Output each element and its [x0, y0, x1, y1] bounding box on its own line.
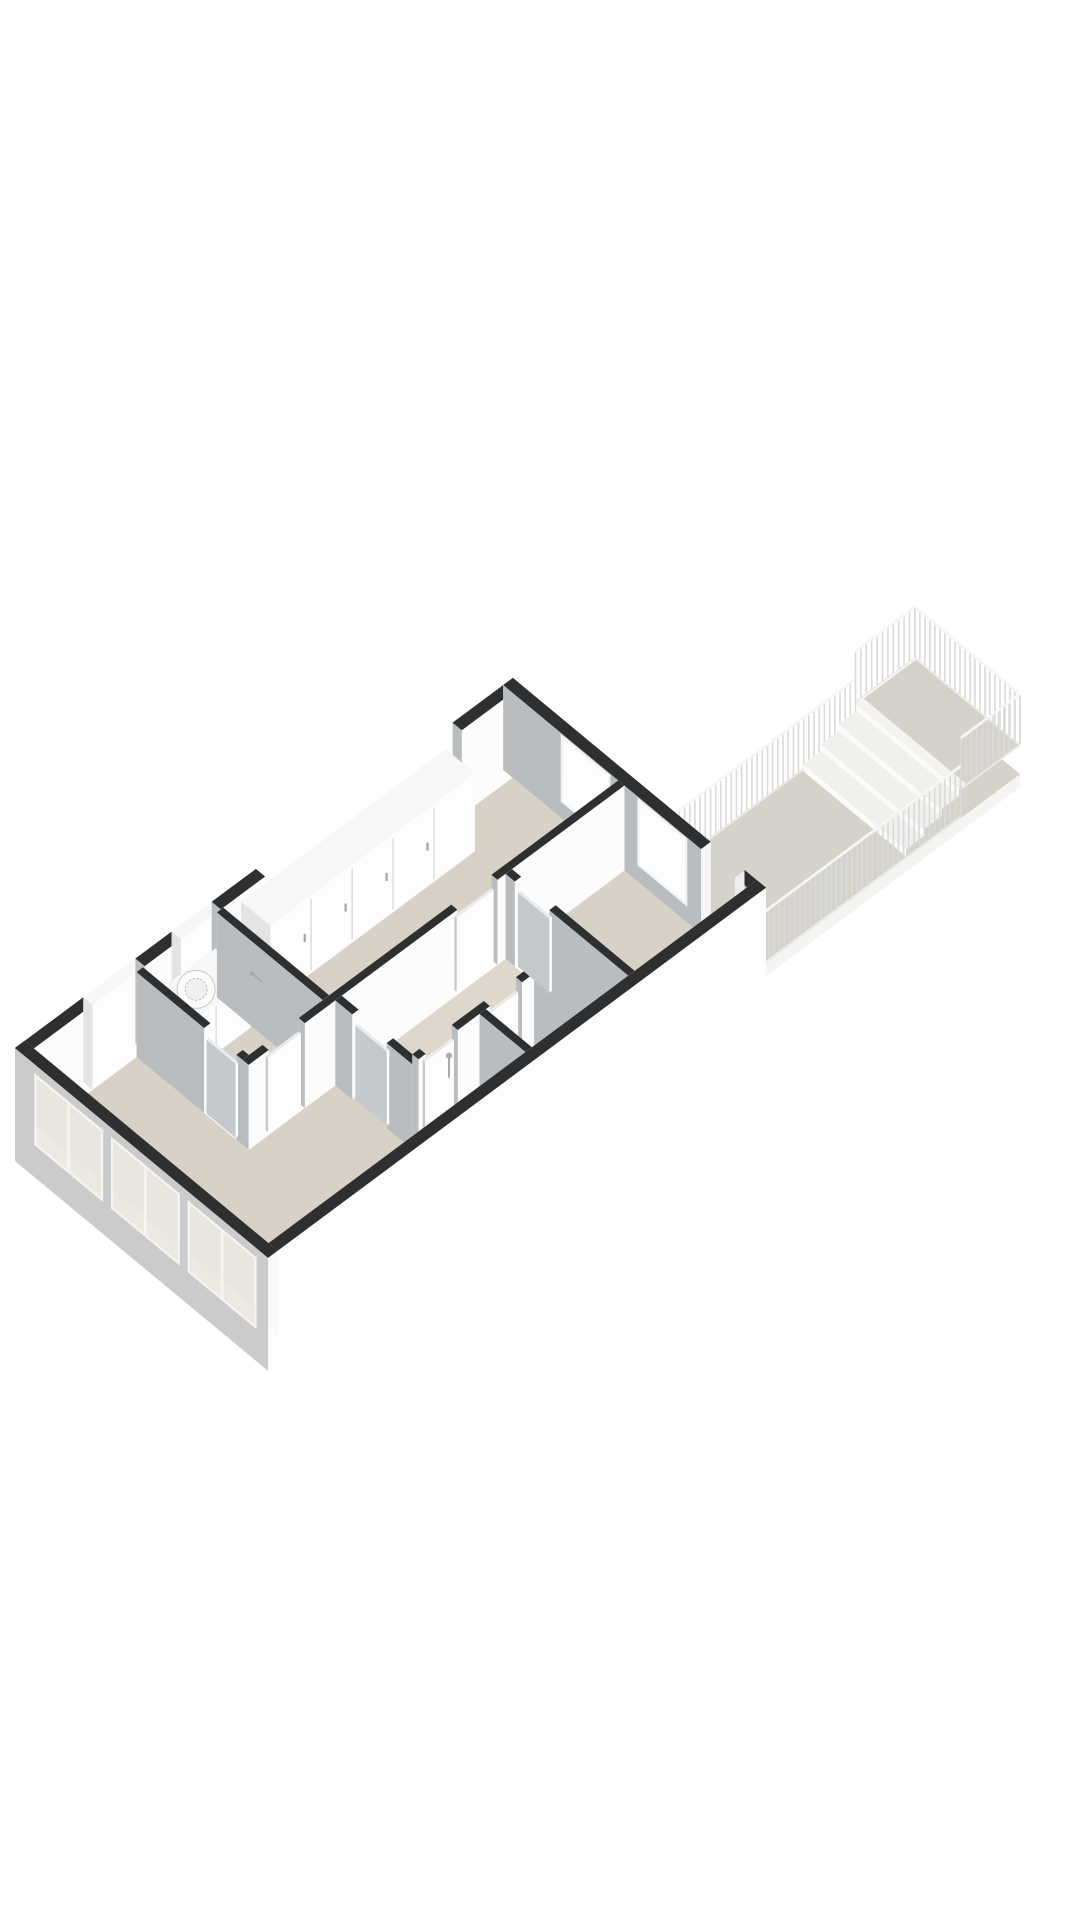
render-shape	[506, 874, 515, 967]
render-shape	[67, 1103, 70, 1172]
render-shape	[250, 971, 254, 975]
render-shape	[423, 1060, 425, 1136]
floor-plan-viewer[interactable]	[0, 0, 1080, 1920]
render-shape	[249, 1050, 269, 1150]
render-shape	[221, 1230, 224, 1299]
render-shape	[335, 1000, 352, 1099]
render-shape	[236, 1062, 238, 1138]
render-shape	[243, 1060, 249, 1150]
render-shape	[185, 978, 207, 1000]
render-shape	[454, 916, 456, 992]
render-shape	[144, 1167, 147, 1236]
apartment	[15, 678, 766, 1371]
render-shape	[387, 1050, 389, 1126]
render-shape	[446, 1053, 452, 1059]
render-shape	[83, 997, 92, 1090]
render-shape	[856, 605, 915, 653]
floor-plan-3d-render	[0, 0, 1080, 1920]
render-shape	[549, 917, 551, 993]
render-shape	[412, 1054, 418, 1144]
render-shape	[266, 1056, 268, 1132]
